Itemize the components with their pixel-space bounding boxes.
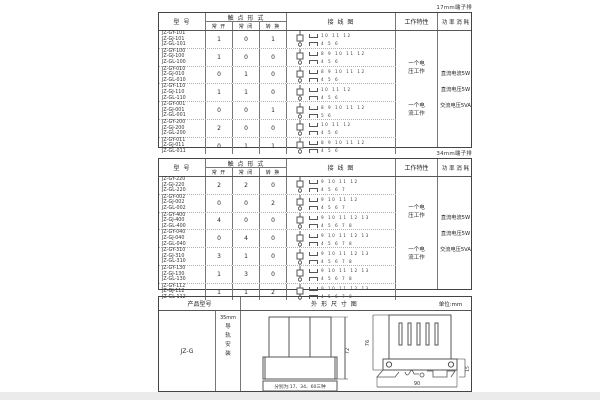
contact-symbol — [309, 106, 318, 110]
table-row: JZ-GY-001 JZ-GJ-001 JZ-GL-0010018 9 10 1… — [159, 101, 396, 119]
normally-closed-count: 4 — [233, 230, 260, 247]
changeover-count: 0 — [260, 213, 287, 230]
table-header: 型 号 触 点 形 式 常 开 常 闭 转 换 接 线 图 工作特性 功 率 消… — [159, 159, 471, 177]
front-note-text: 分别为:17、34、60三种 — [274, 383, 326, 390]
power-ac-voltage: 交流电压5VA — [440, 102, 471, 109]
terminal-numbers-bottom: 4 5 6 7 8 — [321, 223, 353, 228]
terminal-numbers-top: 10 11 12 — [321, 87, 352, 92]
contact-group: 8 9 10 11 124 5 6 — [309, 50, 366, 64]
page-bottom-edge — [0, 392, 600, 400]
coil-symbol — [295, 231, 305, 247]
contact-line-bottom: 4 5 6 — [309, 147, 366, 153]
terminal-numbers-bottom: 4 5 6 7 8 — [321, 241, 353, 246]
normally-closed-count: 1 — [233, 84, 260, 101]
contact-line-bottom: 4 5 6 — [309, 58, 366, 64]
coil-icon — [295, 231, 305, 247]
wiring-diagram-cell: 9 10 11 12 134 5 6 7 8 — [287, 248, 396, 265]
changeover-count: 0 — [260, 230, 287, 247]
normally-closed-count: 0 — [233, 31, 260, 48]
coil-icon — [295, 138, 305, 154]
wiring-diagram-cell: 10 11 124 5 6 — [287, 120, 396, 137]
terminal-numbers-top: 9 10 11 12 13 — [321, 215, 370, 220]
changeover-count: 0 — [260, 177, 287, 194]
contact-group: 9 10 11 124 5 6 7 — [309, 178, 359, 192]
coil-icon — [295, 85, 305, 101]
contact-line-bottom: 4 5 6 7 8 — [309, 258, 370, 264]
coil-icon — [295, 49, 305, 65]
normally-closed-count: 1 — [233, 248, 260, 265]
header-normally-open: 常 开 — [206, 168, 233, 176]
contact-line-bottom: 4 5 6 — [309, 129, 352, 135]
normally-open-count: 4 — [206, 213, 233, 230]
spec-table-17mm: 型 号 触 点 形 式 常 开 常 闭 转 换 接 线 图 工作特性 功 率 消… — [158, 12, 472, 148]
wiring-diagram-cell: 8 9 10 11 124 5 6 — [287, 67, 396, 84]
contact-symbol — [309, 234, 318, 238]
product-model-cell: JZ-G — [159, 311, 216, 391]
outline-dimension-table: 产品型号 外 形 尺 寸 图 单位:mm JZ-G 35mm 导 轨 安 装 — [158, 296, 472, 392]
wiring-diagram-cell: 10 11 124 5 6 — [287, 84, 396, 101]
coil-symbol — [295, 249, 305, 265]
table-row: JZ-GY-011 JZ-GJ-011 JZ-GL-0110118 9 10 1… — [159, 137, 396, 155]
power-dc-voltage: 直流电压5W — [441, 86, 470, 93]
wiring-diagram-cell: 9 10 11 124 5 6 7 — [287, 177, 396, 194]
header-contact-form: 触 点 形 式 — [206, 13, 287, 22]
terminal-numbers-top: 8 9 10 11 12 — [321, 51, 366, 56]
contact-symbol — [309, 206, 318, 210]
coil-symbol — [295, 103, 305, 119]
power-dc-voltage: 直流电压5W — [441, 230, 470, 237]
rail-mount-text: 导 轨 安 装 — [225, 323, 231, 359]
front-view-drawing: 72 分别为:17、34、60三种 — [251, 311, 363, 393]
coil-symbol — [295, 266, 305, 282]
power-dc-current: 直流电流5W — [441, 214, 470, 221]
normally-open-count: 1 — [206, 84, 233, 101]
terminal-numbers-top: 9 10 11 12 13 — [321, 286, 370, 291]
normally-closed-count: 0 — [233, 49, 260, 66]
header-power-consumption: 功 率 消 耗 — [438, 13, 473, 30]
model-cell: JZ-GY-110 JZ-GJ-110 JZ-GL-110 — [159, 84, 206, 101]
header-contact-form: 触 点 形 式 — [206, 159, 287, 168]
outline-drawings: 72 分别为:17、34、60三种 — [241, 311, 471, 391]
normally-closed-count: 1 — [233, 138, 260, 155]
contact-symbol — [309, 149, 318, 153]
contact-line-top: 8 9 10 11 12 — [309, 139, 366, 145]
contact-symbol — [309, 216, 318, 220]
contact-symbol — [309, 60, 318, 64]
contact-symbol — [309, 52, 318, 56]
terminal-numbers-bottom: 4 5 6 7 — [321, 205, 346, 210]
contact-symbol — [309, 188, 318, 192]
normally-open-count: 0 — [206, 67, 233, 84]
work-characteristic-current: 一个电 流工作 — [408, 102, 425, 118]
contact-line-top: 8 9 10 11 12 — [309, 50, 366, 56]
normally-open-count: 3 — [206, 248, 233, 265]
contact-symbol — [309, 180, 318, 184]
table-row: JZ-GY-010 JZ-GJ-010 JZ-GL-0100108 9 10 1… — [159, 66, 396, 84]
terminal-numbers-bottom: 4 5 6 — [321, 41, 339, 46]
power-consumption-cell: 直流电流5W 直流电压5W 交流电压5VA — [438, 31, 473, 147]
contact-group: 9 10 11 12 134 5 6 7 8 — [309, 232, 370, 246]
contact-symbol — [309, 242, 318, 246]
dim-table-header: 产品型号 外 形 尺 寸 图 单位:mm — [159, 297, 471, 311]
normally-open-count: 1 — [206, 49, 233, 66]
terminal-numbers-bottom: 4 5 6 7 8 — [321, 259, 353, 264]
contact-symbol — [309, 269, 318, 273]
coil-symbol — [295, 120, 305, 136]
header-wiring-diagram: 接 线 图 — [287, 13, 396, 30]
wiring-diagram-cell: 8 9 10 11 124 5 6 — [287, 138, 396, 155]
datasheet-page: 17mm端子排 型 号 触 点 形 式 常 开 常 闭 转 换 接 线 图 工作… — [0, 0, 600, 400]
coil-icon — [295, 120, 305, 136]
terminal-numbers-top: 9 10 11 12 — [321, 197, 359, 202]
coil-icon — [295, 31, 305, 47]
wiring-diagram-cell: 9 10 11 12 134 5 6 7 8 — [287, 230, 396, 247]
dim-front-height: 72 — [345, 348, 351, 354]
coil-symbol — [295, 31, 305, 47]
contact-symbol — [309, 123, 318, 127]
terminal-numbers-top: 8 9 10 11 12 — [321, 69, 366, 74]
contact-line-top: 9 10 11 12 13 — [309, 232, 370, 238]
model-cell: JZ-GY-002 JZ-GJ-002 JZ-GL-002 — [159, 195, 206, 212]
coil-icon — [295, 213, 305, 229]
contact-symbol — [309, 198, 318, 202]
work-characteristic-cell: 一个电 压工作 一个电 流工作 — [396, 31, 438, 147]
model-cell: JZ-GY-220 JZ-GJ-220 JZ-GL-220 — [159, 177, 206, 194]
contact-symbol — [309, 96, 318, 100]
normally-open-count: 0 — [206, 195, 233, 212]
power-ac-voltage: 交流电压5VA — [440, 246, 471, 253]
terminal-numbers-top: 9 10 11 12 — [321, 179, 359, 184]
contact-group: 10 11 124 5 6 — [309, 121, 352, 135]
table-rows: JZ-GY-101 JZ-GJ-101 JZ-GL-10110110 11 12… — [159, 31, 396, 147]
contact-symbol — [309, 260, 318, 264]
contact-symbol — [309, 131, 318, 135]
terminal-numbers-bottom: 5 6 — [321, 113, 332, 118]
terminal-numbers-bottom: 4 5 6 7 8 — [321, 276, 353, 281]
terminal-numbers-bottom: 4 5 6 7 — [321, 187, 346, 192]
changeover-count: 0 — [260, 120, 287, 137]
terminal-numbers-top: 10 11 12 — [321, 33, 352, 38]
terminal-numbers-bottom: 4 5 6 — [321, 77, 339, 82]
normally-closed-count: 0 — [233, 102, 260, 119]
normally-open-count: 0 — [206, 230, 233, 247]
contact-group: 9 10 11 12 134 5 6 7 8 — [309, 267, 370, 281]
normally-closed-count: 3 — [233, 266, 260, 283]
header-work-characteristic: 工作特性 — [396, 159, 438, 176]
normally-open-count: 0 — [206, 138, 233, 155]
contact-group: 10 11 124 5 6 — [309, 32, 352, 46]
contact-group: 9 10 11 124 5 6 7 — [309, 196, 359, 210]
changeover-count: 0 — [260, 49, 287, 66]
terminal-numbers-top: 9 10 11 12 13 — [321, 251, 370, 256]
header-wiring-diagram: 接 线 图 — [287, 159, 396, 176]
table-row: JZ-GY-400 JZ-GJ-400 JZ-GL-4004009 10 11 … — [159, 212, 396, 230]
header-work-characteristic: 工作特性 — [396, 13, 438, 30]
rail-width: 35mm — [220, 315, 236, 321]
contact-line-top: 9 10 11 12 13 — [309, 285, 370, 291]
contact-line-bottom: 4 5 6 7 8 — [309, 275, 370, 281]
wiring-diagram-cell: 9 10 11 12 134 5 6 7 8 — [287, 266, 396, 283]
contact-symbol — [309, 42, 318, 46]
normally-closed-count: 0 — [233, 120, 260, 137]
table-row: JZ-GY-200 JZ-GJ-200 JZ-GL-20020010 11 12… — [159, 119, 396, 137]
coil-icon — [295, 67, 305, 83]
contact-symbol — [309, 287, 318, 291]
model-cell: JZ-GY-310 JZ-GJ-310 JZ-GL-310 — [159, 248, 206, 265]
dim-side-width: 90 — [414, 381, 420, 387]
changeover-count: 2 — [260, 195, 287, 212]
normally-closed-count: 0 — [233, 195, 260, 212]
work-characteristic-current: 一个电 流工作 — [408, 246, 425, 262]
coil-symbol — [295, 177, 305, 193]
contact-line-bottom: 4 5 6 7 — [309, 186, 359, 192]
terminal-numbers-top: 8 9 10 11 12 — [321, 105, 366, 110]
terminal-numbers-top: 8 9 10 11 12 — [321, 140, 366, 145]
table-header: 型 号 触 点 形 式 常 开 常 闭 转 换 接 线 图 工作特性 功 率 消… — [159, 13, 471, 31]
model-cell: JZ-GY-400 JZ-GJ-400 JZ-GL-400 — [159, 213, 206, 230]
changeover-count: 1 — [260, 138, 287, 155]
contact-line-top: 9 10 11 12 13 — [309, 267, 370, 273]
model-cell: JZ-GY-010 JZ-GJ-010 JZ-GL-010 — [159, 67, 206, 84]
contact-group: 8 9 10 11 124 5 6 — [309, 68, 366, 82]
normally-open-count: 2 — [206, 120, 233, 137]
side-view-drawing: 76 90 15 — [361, 311, 479, 393]
header-model: 型 号 — [159, 13, 206, 30]
contact-line-bottom: 4 5 6 — [309, 94, 352, 100]
contact-symbol — [309, 114, 318, 118]
coil-icon — [295, 266, 305, 282]
wiring-diagram-cell: 8 9 10 11 125 6 — [287, 102, 396, 119]
contact-line-top: 9 10 11 12 13 — [309, 214, 370, 220]
model-cell: JZ-GY-200 JZ-GJ-200 JZ-GL-200 — [159, 120, 206, 137]
coil-icon — [295, 103, 305, 119]
contact-symbol — [309, 141, 318, 145]
dim-rail: 15 — [465, 366, 471, 372]
wiring-diagram-cell: 8 9 10 11 124 5 6 — [287, 49, 396, 66]
coil-symbol — [295, 67, 305, 83]
normally-closed-count: 1 — [233, 67, 260, 84]
contact-symbol — [309, 277, 318, 281]
model-cell: JZ-GY-001 JZ-GJ-001 JZ-GL-001 — [159, 102, 206, 119]
model-cell: JZ-GY-100 JZ-GJ-100 JZ-GL-100 — [159, 49, 206, 66]
table-row: JZ-GY-100 JZ-GJ-100 JZ-GL-1001008 9 10 1… — [159, 48, 396, 66]
model-cell: JZ-GY-040 JZ-GJ-040 JZ-GL-040 — [159, 230, 206, 247]
model-cell: JZ-GY-011 JZ-GJ-011 JZ-GL-011 — [159, 138, 206, 155]
coil-symbol — [295, 213, 305, 229]
coil-symbol — [295, 138, 305, 154]
contact-line-bottom: 4 5 6 — [309, 40, 352, 46]
wiring-diagram-cell: 9 10 11 12 134 5 6 7 8 — [287, 213, 396, 230]
contact-symbol — [309, 78, 318, 82]
normally-open-count: 0 — [206, 102, 233, 119]
header-outline-dimension: 外 形 尺 寸 图 — [241, 297, 428, 310]
normally-open-count: 2 — [206, 177, 233, 194]
contact-group: 8 9 10 11 125 6 — [309, 104, 366, 118]
coil-symbol — [295, 195, 305, 211]
contact-line-bottom: 4 5 6 — [309, 76, 366, 82]
terminal-numbers-bottom: 4 5 6 — [321, 95, 339, 100]
dim-side-height: 76 — [365, 340, 371, 346]
contact-line-top: 8 9 10 11 12 — [309, 104, 366, 110]
normally-open-count: 1 — [206, 31, 233, 48]
contact-line-top: 9 10 11 12 13 — [309, 250, 370, 256]
table-row: JZ-GY-040 JZ-GJ-040 JZ-GL-0400409 10 11 … — [159, 229, 396, 247]
header-normally-closed: 常 闭 — [233, 168, 260, 176]
header-unit: 单位:mm — [428, 297, 473, 310]
table-rows: JZ-GY-220 JZ-GJ-220 JZ-GL-2202209 10 11 … — [159, 177, 396, 289]
contact-symbol — [309, 70, 318, 74]
work-characteristic-voltage: 一个电 压工作 — [408, 60, 425, 76]
contact-group: 10 11 124 5 6 — [309, 86, 352, 100]
table-row: JZ-GY-220 JZ-GJ-220 JZ-GL-2202209 10 11 … — [159, 177, 396, 194]
header-changeover: 转 换 — [260, 168, 287, 176]
terminal-numbers-bottom: 4 5 6 — [321, 130, 339, 135]
table-row: JZ-GY-130 JZ-GJ-130 JZ-GL-1301309 10 11 … — [159, 265, 396, 283]
changeover-count: 1 — [260, 102, 287, 119]
terminal-numbers-top: 9 10 11 12 13 — [321, 233, 370, 238]
contact-group: 9 10 11 12 134 5 6 7 8 — [309, 214, 370, 228]
wiring-diagram-cell: 9 10 11 124 5 6 7 — [287, 195, 396, 212]
contact-line-top: 8 9 10 11 12 — [309, 68, 366, 74]
table-row: JZ-GY-310 JZ-GJ-310 JZ-GL-3103109 10 11 … — [159, 247, 396, 265]
changeover-count: 0 — [260, 266, 287, 283]
power-dc-current: 直流电流5W — [441, 70, 470, 77]
normally-open-count: 1 — [206, 266, 233, 283]
contact-symbol — [309, 224, 318, 228]
spec-table-34mm: 型 号 触 点 形 式 常 开 常 闭 转 换 接 线 图 工作特性 功 率 消… — [158, 158, 472, 290]
contact-line-bottom: 4 5 6 7 — [309, 204, 359, 210]
work-characteristic-cell: 一个电 压工作 一个电 流工作 — [396, 177, 438, 289]
normally-closed-count: 2 — [233, 177, 260, 194]
contact-symbol — [309, 252, 318, 256]
changeover-count: 1 — [260, 31, 287, 48]
model-cell: JZ-GY-101 JZ-GJ-101 JZ-GL-101 — [159, 31, 206, 48]
terminal-strip-label-34mm: 34mm端子排 — [436, 149, 472, 157]
power-consumption-cell: 直流电流5W 直流电压5W 交流电压5VA — [438, 177, 473, 289]
contact-group: 8 9 10 11 124 5 6 — [309, 139, 366, 153]
contact-line-bottom: 5 6 — [309, 112, 366, 118]
coil-symbol — [295, 85, 305, 101]
coil-icon — [295, 177, 305, 193]
changeover-count: 0 — [260, 67, 287, 84]
coil-icon — [295, 249, 305, 265]
contact-line-top: 9 10 11 12 — [309, 196, 359, 202]
table-row: JZ-GY-110 JZ-GJ-110 JZ-GL-11011010 11 12… — [159, 83, 396, 101]
terminal-numbers-top: 9 10 11 12 13 — [321, 268, 370, 273]
table-row: JZ-GY-101 JZ-GJ-101 JZ-GL-10110110 11 12… — [159, 31, 396, 48]
terminal-numbers-bottom: 4 5 6 — [321, 59, 339, 64]
model-cell: JZ-GY-130 JZ-GJ-130 JZ-GL-130 — [159, 266, 206, 283]
header-product-model: 产品型号 — [159, 297, 241, 310]
header-normally-closed: 常 闭 — [233, 22, 260, 30]
work-characteristic-voltage: 一个电 压工作 — [408, 204, 425, 220]
header-model: 型 号 — [159, 159, 206, 176]
terminal-strip-label-17mm: 17mm端子排 — [436, 3, 472, 11]
rail-mount-cell: 35mm 导 轨 安 装 — [216, 311, 241, 391]
contact-line-bottom: 4 5 6 7 8 — [309, 222, 370, 228]
terminal-numbers-bottom: 4 5 6 — [321, 148, 339, 153]
normally-closed-count: 0 — [233, 213, 260, 230]
contact-line-bottom: 4 5 6 7 8 — [309, 240, 370, 246]
wiring-diagram-cell: 10 11 124 5 6 — [287, 31, 396, 48]
terminal-numbers-top: 10 11 12 — [321, 122, 352, 127]
contact-symbol — [309, 34, 318, 38]
header-normally-open: 常 开 — [206, 22, 233, 30]
contact-line-top: 10 11 12 — [309, 121, 352, 127]
contact-line-top: 10 11 12 — [309, 86, 352, 92]
changeover-count: 0 — [260, 248, 287, 265]
changeover-count: 0 — [260, 84, 287, 101]
coil-symbol — [295, 49, 305, 65]
contact-line-top: 10 11 12 — [309, 32, 352, 38]
table-row: JZ-GY-002 JZ-GJ-002 JZ-GL-0020029 10 11 … — [159, 194, 396, 212]
contact-symbol — [309, 88, 318, 92]
contact-line-top: 9 10 11 12 — [309, 178, 359, 184]
header-changeover: 转 换 — [260, 22, 287, 30]
coil-icon — [295, 195, 305, 211]
contact-group: 9 10 11 12 134 5 6 7 8 — [309, 250, 370, 264]
header-power-consumption: 功 率 消 耗 — [438, 159, 473, 176]
